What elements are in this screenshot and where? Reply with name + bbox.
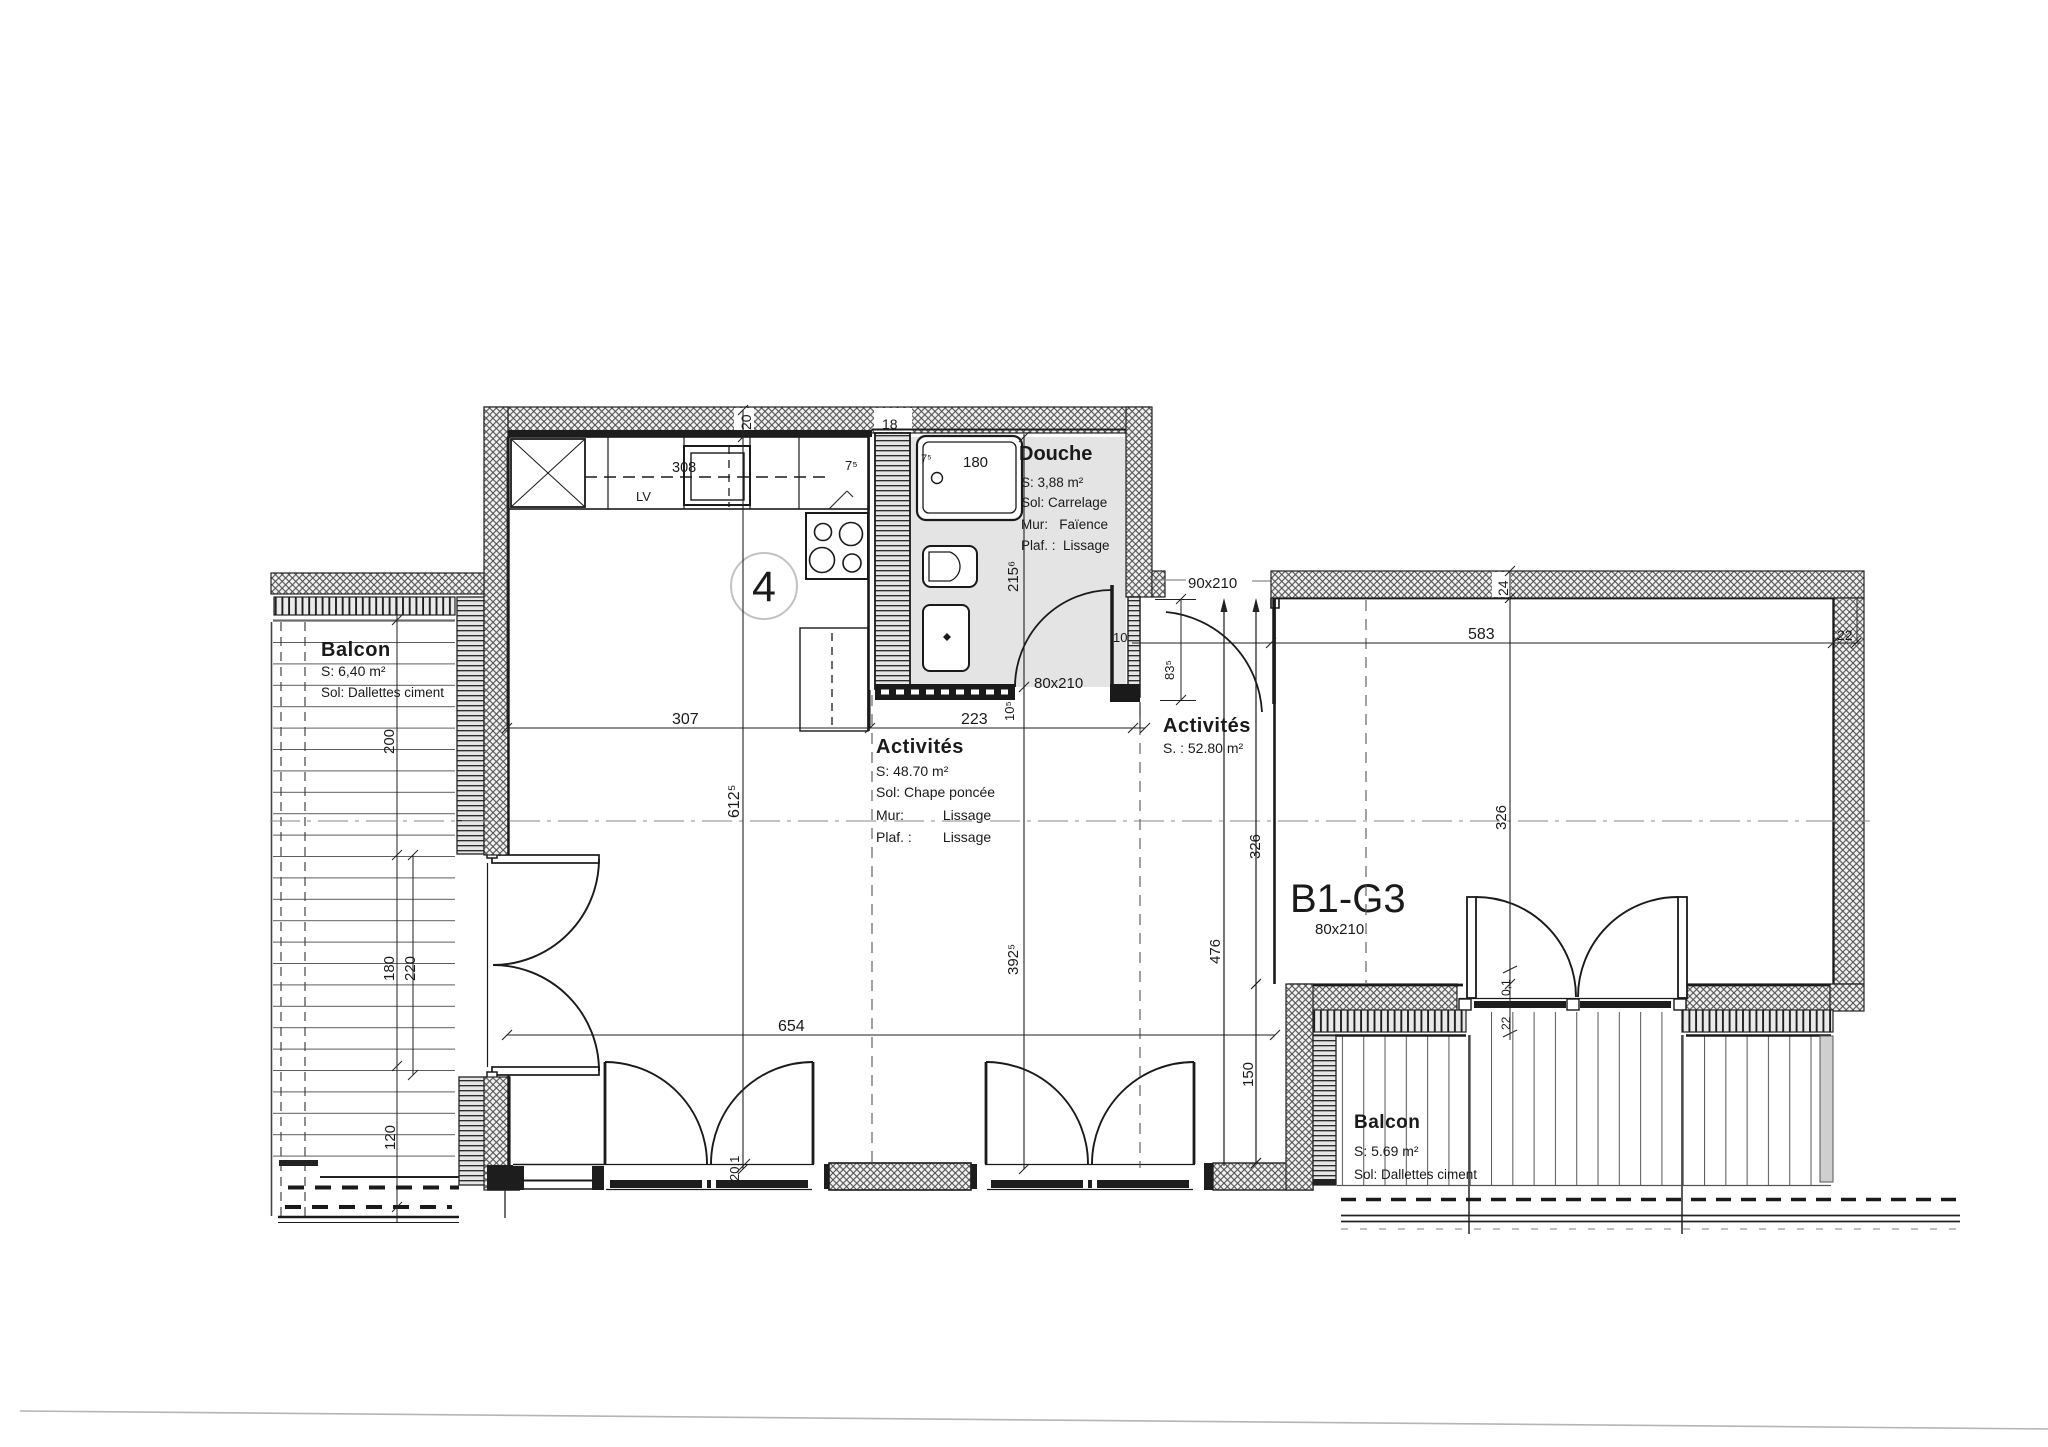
svg-text:200: 200 bbox=[381, 729, 398, 754]
svg-text:220: 220 bbox=[402, 956, 419, 981]
svg-text:90x210: 90x210 bbox=[1188, 575, 1237, 592]
svg-text:392⁵: 392⁵ bbox=[1005, 944, 1022, 975]
svg-text:22: 22 bbox=[1837, 627, 1853, 643]
svg-text:B1-G3: B1-G3 bbox=[1290, 877, 1406, 921]
svg-text:S: 3,88 m²: S: 3,88 m² bbox=[1021, 475, 1084, 490]
svg-text:S: 5.69 m²: S: 5.69 m² bbox=[1354, 1143, 1419, 1159]
svg-text:120: 120 bbox=[382, 1125, 399, 1150]
svg-text:476: 476 bbox=[1207, 939, 1224, 964]
svg-text:Balcon: Balcon bbox=[1354, 1112, 1420, 1133]
svg-text:Sol: Dallettes ciment: Sol: Dallettes ciment bbox=[1354, 1167, 1477, 1182]
svg-text:4: 4 bbox=[752, 563, 776, 611]
svg-text:Activités: Activités bbox=[876, 736, 964, 758]
svg-text:180: 180 bbox=[963, 454, 988, 471]
svg-text:307: 307 bbox=[672, 711, 699, 728]
svg-text:S. : 52.80 m²: S. : 52.80 m² bbox=[1163, 740, 1243, 756]
svg-text:150: 150 bbox=[1240, 1062, 1257, 1087]
svg-text:LV: LV bbox=[636, 489, 651, 504]
svg-text:583: 583 bbox=[1468, 626, 1495, 643]
svg-text:326: 326 bbox=[1247, 834, 1264, 859]
svg-text:223: 223 bbox=[961, 711, 988, 728]
svg-text:20,1: 20,1 bbox=[727, 1156, 742, 1181]
svg-text:7⁵: 7⁵ bbox=[921, 453, 932, 465]
svg-text:83⁵: 83⁵ bbox=[1162, 660, 1177, 680]
svg-text:654: 654 bbox=[778, 1018, 805, 1035]
svg-text:24: 24 bbox=[1495, 580, 1511, 596]
svg-text:Douche: Douche bbox=[1019, 443, 1092, 465]
svg-text:S: 48.70 m²: S: 48.70 m² bbox=[876, 763, 949, 779]
svg-text:80x210: 80x210 bbox=[1315, 921, 1364, 938]
svg-text:Sol: Dallettes ciment: Sol: Dallettes ciment bbox=[321, 685, 444, 700]
svg-text:80x210: 80x210 bbox=[1034, 675, 1083, 692]
svg-text:Sol: Chape poncée: Sol: Chape poncée bbox=[876, 784, 995, 800]
svg-text:612⁵: 612⁵ bbox=[726, 785, 743, 818]
svg-text:Sol: Carrelage: Sol: Carrelage bbox=[1021, 495, 1107, 510]
svg-text:Mur: Faïence: Mur: Faïence bbox=[1021, 517, 1108, 532]
svg-text:308: 308 bbox=[672, 460, 696, 476]
svg-text:10⁵: 10⁵ bbox=[1002, 701, 1017, 721]
svg-text:20: 20 bbox=[738, 414, 754, 430]
svg-text:326: 326 bbox=[1493, 805, 1510, 830]
svg-text:10: 10 bbox=[1113, 630, 1127, 645]
svg-text:180: 180 bbox=[381, 956, 398, 981]
svg-text:S: 6,40 m²: S: 6,40 m² bbox=[321, 663, 386, 679]
svg-text:Balcon: Balcon bbox=[321, 639, 391, 661]
svg-text:Plaf. : Lissage: Plaf. : Lissage bbox=[876, 829, 991, 845]
svg-text:215⁶: 215⁶ bbox=[1005, 561, 1022, 592]
svg-text:7⁵: 7⁵ bbox=[845, 458, 858, 473]
svg-text:Activités: Activités bbox=[1163, 715, 1251, 737]
svg-text:Plaf. : Lissage: Plaf. : Lissage bbox=[1021, 538, 1110, 553]
